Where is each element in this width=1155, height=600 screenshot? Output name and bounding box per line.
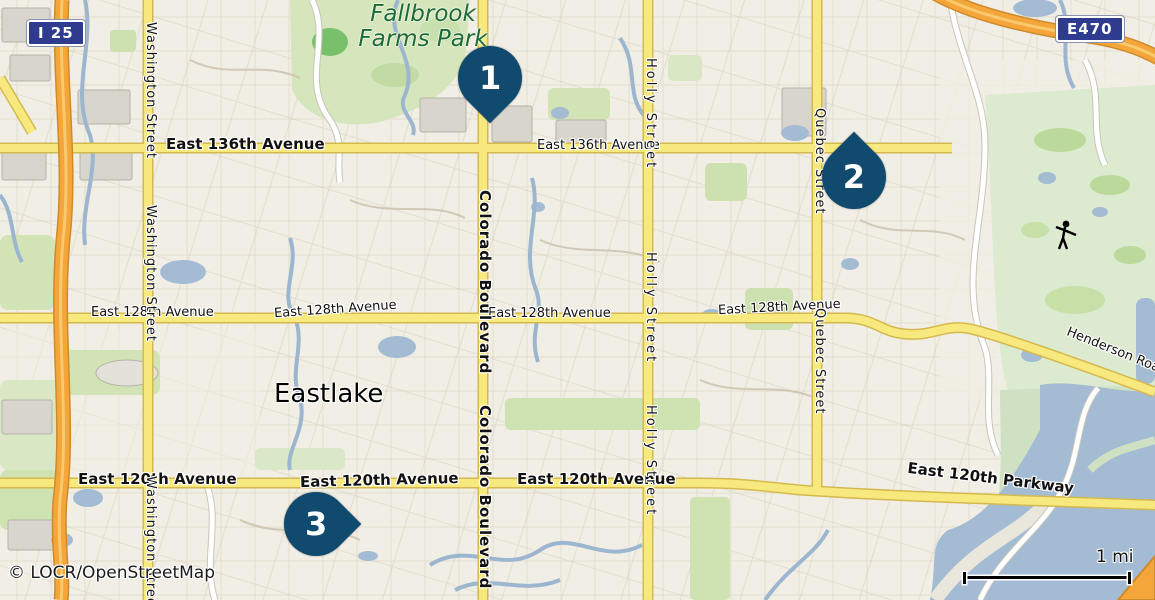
- scale-bar-tick-left: [963, 572, 966, 584]
- map-artwork: [0, 0, 1155, 600]
- scale-bar-tick-right: [1128, 572, 1131, 584]
- marker-3-number: 3: [305, 505, 327, 543]
- road-label-east-120th-2: East 120th Avenue: [300, 470, 459, 491]
- scale-bar-line: [963, 576, 1131, 579]
- road-label-colorado-2: Colorado Boulevard: [477, 405, 494, 589]
- road-label-colorado-1: Colorado Boulevard: [477, 190, 494, 374]
- scale-bar: [963, 572, 1131, 584]
- park-label-line1: Fallbrook: [338, 2, 508, 27]
- highway-shield-e470: E470: [1056, 16, 1124, 42]
- road-label-east-128th-3: East 128th Avenue: [488, 307, 611, 321]
- road-label-quebec-2: Quebec Street: [812, 308, 826, 415]
- highway-shield-i25: I 25: [27, 20, 85, 46]
- road-label-quebec-1: Quebec Street: [812, 108, 826, 215]
- map-canvas[interactable]: Fallbrook Farms Park East 136th Avenue E…: [0, 0, 1155, 600]
- road-label-holly-3: Holly Street: [643, 405, 657, 517]
- road-label-washington-2: Washington Street: [143, 205, 157, 342]
- road-label-east-136th-2: East 136th Avenue: [537, 139, 660, 153]
- road-label-washington-1: Washington Street: [143, 22, 157, 159]
- marker-2-number: 2: [843, 158, 865, 196]
- marker-1-number: 1: [479, 59, 501, 97]
- road-label-east-136th-1: East 136th Avenue: [166, 136, 325, 153]
- scale-label: 1 mi: [1096, 548, 1134, 567]
- park-label: Fallbrook Farms Park: [338, 2, 508, 53]
- town-label-eastlake: Eastlake: [274, 380, 383, 409]
- road-label-holly-1: Holly Street: [643, 58, 657, 170]
- map-attribution: © LOCR/OpenStreetMap: [8, 564, 215, 583]
- road-label-holly-2: Holly Street: [643, 252, 657, 364]
